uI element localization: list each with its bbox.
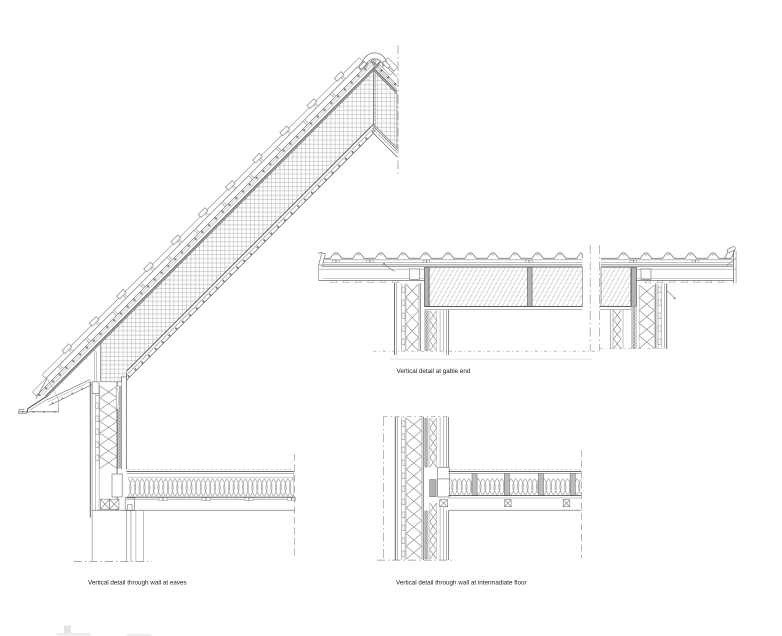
svg-text:Vertical detail through wall a: Vertical detail through wall at intermad… — [396, 580, 527, 587]
svg-text:Vertical detail through wall a: Vertical detail through wall at eaves — [88, 580, 187, 587]
svg-text:Vertical detail at gable end: Vertical detail at gable end — [397, 368, 471, 375]
